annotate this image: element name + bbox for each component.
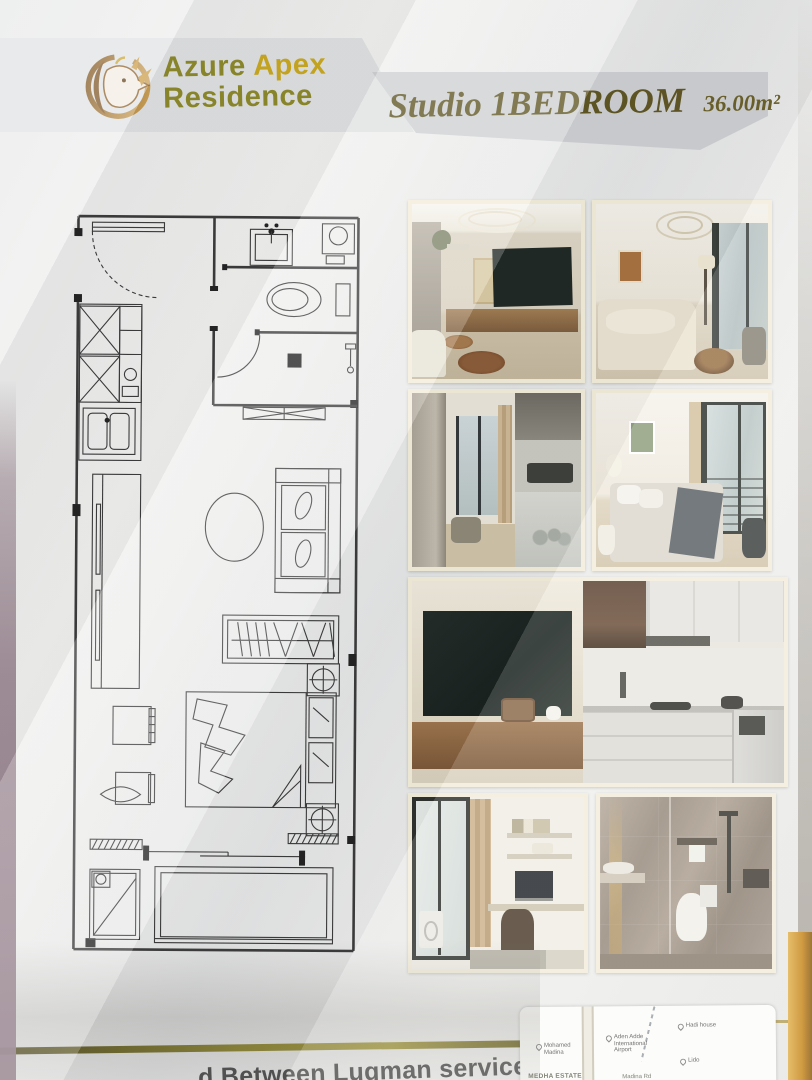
brand-word-residence: Residence	[163, 81, 327, 115]
lamp	[606, 454, 621, 477]
counter-appliances	[527, 463, 573, 484]
flyer-page: Azure Apex Residence Studio 1BEDROOM 36.…	[0, 0, 812, 1080]
tv-console	[446, 309, 578, 332]
wall-art	[618, 250, 643, 284]
floor	[546, 950, 584, 969]
map-vertical-road	[582, 1006, 595, 1080]
photo-bedroom-balcony	[592, 389, 772, 571]
map-pin-mohamed-madina: Mohamed Madina	[536, 1043, 572, 1056]
desk	[488, 904, 584, 911]
photo-bathroom	[596, 793, 776, 973]
shower-glass	[669, 797, 672, 969]
map-pin-label: Aden Adde International Airport	[614, 1034, 648, 1054]
tv-console	[412, 722, 583, 768]
photo-workspace-balcony-laundry	[408, 793, 588, 973]
books	[512, 819, 550, 833]
map-pin-label: Mohamed Madina	[544, 1043, 572, 1056]
pillow	[617, 485, 641, 504]
fridge-art	[527, 522, 571, 553]
fridge-panel	[739, 716, 765, 734]
map-road-label: Madina Rd	[622, 1074, 651, 1080]
shelf-decor	[532, 843, 553, 853]
brand-word-apex: Apex	[253, 49, 327, 82]
photo-kitchen-hallway	[408, 389, 585, 571]
location-caption: d Between Luqman service	[198, 1052, 528, 1080]
map-pin-icon	[679, 1057, 687, 1065]
gold-divider-rule	[0, 1040, 522, 1054]
photo-living-room-sofa	[592, 200, 772, 383]
wall-shelf	[507, 854, 572, 859]
furniture	[451, 517, 481, 543]
floor-lamp-pole	[704, 269, 707, 325]
photo-tv-console-and-kitchen	[408, 577, 788, 787]
map-pin-lido: Lido	[680, 1057, 716, 1064]
toilet-tank	[700, 885, 717, 907]
coffee-table	[458, 351, 505, 374]
sink-basin	[603, 862, 634, 874]
vanity-counter	[600, 873, 645, 883]
side-table	[444, 335, 473, 349]
towel-shelf	[677, 838, 717, 845]
range-hood	[515, 393, 581, 440]
flyer-header: Azure Apex Residence Studio 1BEDROOM 36.…	[0, 0, 812, 178]
brand-name: Azure Apex Residence	[162, 50, 327, 115]
map-area-label: MEDHA ESTATE	[528, 1073, 582, 1080]
wall-shelf	[447, 244, 469, 249]
photo-living-room-tv-wall	[408, 200, 585, 383]
desk-chair	[742, 518, 766, 558]
stool	[598, 525, 615, 555]
coffee-table	[694, 348, 734, 374]
tall-cabinet	[412, 393, 446, 567]
bathroom-floor	[600, 954, 772, 969]
cooktop	[650, 702, 691, 710]
table-edge-strip	[788, 932, 812, 1080]
tv-screen	[492, 247, 573, 307]
map-pin-airport: Aden Adde International Airport	[606, 1034, 648, 1054]
wall-shelf	[507, 833, 572, 838]
range-hood	[646, 636, 709, 646]
washer-door	[424, 921, 438, 942]
kettle	[721, 696, 743, 709]
curtain	[470, 799, 491, 947]
towel	[689, 845, 704, 862]
unit-title-block: Studio 1BEDROOM 36.00m²	[388, 79, 780, 127]
gold-light-streak	[609, 797, 623, 969]
floor-plan-drawing	[59, 194, 364, 966]
rhino-logo-icon	[79, 45, 156, 122]
unit-type-title: Studio 1BEDROOM	[388, 81, 685, 126]
computer-monitor	[515, 871, 553, 902]
armchair	[408, 330, 446, 377]
map-pin-label: Hadi house	[686, 1022, 716, 1029]
wall-art	[629, 421, 655, 455]
decor-item	[546, 706, 561, 720]
speaker	[501, 698, 534, 722]
curtain	[498, 405, 512, 523]
photo-left-edge	[0, 380, 16, 1080]
upper-cabinet-white	[646, 581, 784, 642]
tv-screen	[423, 611, 572, 716]
faucet	[620, 672, 626, 698]
bed-throw	[669, 488, 724, 560]
shower-niche	[743, 869, 769, 888]
window	[456, 416, 500, 515]
map-pin-hadi-house: Hadi house	[678, 1022, 726, 1029]
pillow	[639, 489, 663, 508]
floor-lamp-shade	[698, 255, 715, 269]
map-pin-icon	[677, 1022, 685, 1030]
map-pin-label: Lido	[688, 1058, 699, 1065]
side-chair	[742, 327, 766, 366]
map-pin-icon	[535, 1043, 543, 1051]
unit-area-value: 36.00m²	[703, 90, 780, 116]
sofa-cushions	[606, 309, 675, 334]
rug	[470, 950, 546, 969]
shower-column	[727, 814, 730, 893]
location-map-card: Mohamed Madina Aden Adde International A…	[520, 1005, 777, 1080]
map-pin-icon	[605, 1034, 613, 1042]
upper-cabinet-dark	[583, 581, 646, 648]
backsplash	[583, 648, 784, 709]
brand-word-azure: Azure	[162, 50, 246, 84]
